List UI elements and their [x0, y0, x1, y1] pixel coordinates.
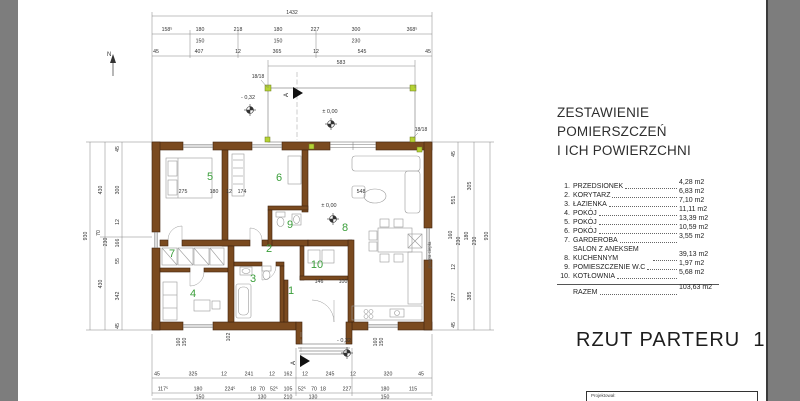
dim-label: 52⁵ [298, 387, 306, 393]
dim-label: 12 [451, 264, 457, 270]
row-label: POKÓJ [573, 218, 597, 227]
dim-label: 365 [273, 49, 282, 55]
dim-label: 12 [235, 49, 241, 55]
row-area: 4,28 m2 [679, 178, 719, 187]
dotted-leader [599, 224, 677, 225]
dim-label: 150 [381, 395, 390, 401]
dim-label: 52⁵ [270, 387, 278, 393]
level-label-terrace: ± 0,00 [322, 109, 337, 115]
row-area: 10,59 m2 [679, 223, 719, 232]
room-number-8: 8 [342, 222, 348, 234]
dim-label: 241 [245, 372, 254, 378]
row-label: POKÓJ [573, 227, 597, 236]
room-number-5: 5 [207, 171, 213, 183]
dim-label: 230 [352, 39, 361, 45]
column-size-label: 18/18 [415, 127, 428, 133]
row-number: 5. [557, 218, 570, 227]
dimension-lines [86, 12, 494, 399]
dim-label: 277 [451, 293, 457, 302]
dim-label: 105 [284, 387, 293, 393]
dim-label: 551 [451, 196, 457, 205]
pasteboard-right [766, 0, 800, 401]
room-number-9: 9 [287, 219, 293, 231]
dim-label: 70 [311, 387, 317, 393]
dim-label: 45 [153, 49, 159, 55]
schedule-rows: 1.PRZEDSIONEK4,28 m2 2.KORYTARZ6,83 m2 3… [557, 182, 719, 281]
dim-label: 70 [259, 387, 265, 393]
room-number-1: 1 [288, 285, 294, 297]
row-number: 6. [557, 227, 570, 236]
dim-label: 230 [456, 237, 462, 246]
dim-label: 180 [274, 27, 283, 33]
dim-label: 342 [115, 292, 121, 301]
room-schedule: ZESTAWIENIE POMIERSZCZEŃ I ICH POWIERZCH… [557, 104, 719, 297]
dim-label: 45 [154, 372, 160, 378]
dim-label: 230 [103, 238, 109, 247]
dim-label: 130 [258, 395, 267, 401]
dim-label: 45 [418, 372, 424, 378]
room-number-10: 10 [311, 259, 323, 271]
schedule-title-line2: I ICH POWIERZCHNI [557, 142, 719, 161]
dim-label: 45 [115, 323, 121, 329]
dim-label: 180 [196, 27, 205, 33]
dim-label: 430 [98, 280, 104, 289]
dim-label: 115 [409, 387, 417, 393]
section-label: A [291, 361, 297, 365]
row-number: 7. [557, 236, 570, 245]
row-number: 10. [557, 272, 570, 281]
dim-label: 218 [234, 27, 243, 33]
dim-label: 407 [195, 49, 204, 55]
dim-label: 180 [381, 387, 390, 393]
dotted-leader [599, 215, 677, 216]
dim-label: 12 [302, 372, 308, 378]
dim-label: 12 [269, 372, 275, 378]
dim-label: 180 [464, 232, 470, 241]
row-area: 39,13 m2 [679, 250, 719, 259]
dim-label: 305 [467, 182, 473, 191]
screenshot-canvas: 1432 158⁵ 180 218 180 227 300 368⁵ 150 1… [0, 0, 800, 401]
dim-label: 150 [379, 338, 385, 347]
row-label: ŁAZIENKA [573, 200, 607, 209]
dim-label: 300 [115, 186, 121, 195]
total-label: RAZEM [573, 288, 598, 297]
dim-label: 930 [484, 232, 490, 241]
dotted-leader [609, 206, 677, 207]
dim-label: 210 [284, 395, 293, 401]
row-area: 1,97 m2 [679, 259, 719, 268]
room-number-6: 6 [276, 172, 282, 184]
dim-label: 160 [448, 231, 454, 240]
column-size-label: 18/18 [252, 74, 265, 80]
dim-label: 102 [226, 333, 232, 342]
room-number-3: 3 [250, 273, 256, 285]
dim-label: 12 [313, 49, 319, 55]
schedule-row: 10.KOTŁOWNIA5,68 m2 [557, 272, 719, 281]
row-area: 7,10 m2 [679, 196, 719, 205]
dim-label: 45 [425, 49, 431, 55]
dim-label: 245 [326, 372, 335, 378]
dim-label: 146 [315, 279, 324, 285]
north-label: N [107, 52, 111, 58]
dim-label: 930 [83, 232, 89, 241]
dim-label: 227 [343, 387, 352, 393]
dim-label: 320 [384, 372, 393, 378]
dotted-leader [599, 233, 677, 234]
terrace-outline [268, 88, 415, 142]
row-number: 9. [557, 263, 570, 272]
schedule-row: 7.GARDEROBA3,55 m2 [557, 236, 719, 245]
dim-label: 12 [226, 189, 232, 195]
dim-label: 150 [182, 338, 188, 347]
dim-label: 385 [467, 292, 473, 301]
title-block: Projektował: [586, 391, 758, 401]
dotted-leader [600, 294, 678, 295]
dim-label: 545 [358, 49, 367, 55]
dim-label: 45 [451, 151, 457, 157]
dim-label: 162 [284, 372, 293, 378]
dim-label: 180 [210, 189, 219, 195]
room-number-4: 4 [190, 288, 196, 300]
dotted-leader [653, 260, 677, 261]
dim-label: 150 [274, 39, 283, 45]
dim-label: 166 [115, 239, 121, 248]
row-number: 8. [557, 254, 570, 263]
dim-label: 300 [352, 27, 361, 33]
row-label: POMIESZCZENIE W.C [573, 263, 645, 272]
level-label-salon: ± 0,00 [321, 203, 336, 209]
dim-label: 325 [189, 372, 198, 378]
row-number: 3. [557, 200, 570, 209]
title-block-label: Projektował: [587, 392, 757, 398]
dim-label: 224⁵ [225, 387, 236, 393]
dim-label: 180 [194, 387, 203, 393]
dotted-leader [612, 197, 677, 198]
dim-label: 150 [196, 39, 205, 45]
room-number-7: 7 [169, 248, 175, 260]
row-label: GARDEROBA [573, 236, 618, 245]
dim-label: 583 [337, 60, 346, 66]
dim-label: 548 [357, 189, 366, 195]
dim-label: 230 [472, 237, 478, 246]
dotted-leader [617, 278, 677, 279]
schedule-title: ZESTAWIENIE POMIERSZCZEŃ I ICH POWIERZCH… [557, 104, 719, 161]
level-label-outside-bottom: - 0,32 [337, 338, 351, 344]
dim-label: 150 [196, 395, 205, 401]
dim-label: 117⁵ [158, 387, 168, 393]
dim-label: 12 [350, 372, 356, 378]
row-area: 11,11 m2 [679, 205, 719, 214]
row-number: 4. [557, 209, 570, 218]
row-area: 6,83 m2 [679, 187, 719, 196]
dim-label: 45 [451, 322, 457, 328]
dim-label: 100 [339, 279, 348, 285]
total-area: 103,63 m2 [679, 283, 719, 292]
dim-label: 430 [98, 186, 104, 195]
dim-label: 275 [179, 189, 188, 195]
row-number: 2. [557, 191, 570, 200]
dim-label: 1432 [286, 10, 298, 16]
row-area: 13,39 m2 [679, 214, 719, 223]
dim-label: 18 [250, 387, 256, 393]
dim-label: 18 [320, 387, 326, 393]
dim-label: 70 [96, 230, 102, 236]
dim-label: 12 [221, 372, 227, 378]
section-label: A [284, 93, 290, 97]
dim-label: 174 [238, 189, 247, 195]
row-label: SALON Z ANEKSEM KUCHENNYM [573, 245, 651, 263]
dim-label: 45 [115, 146, 121, 152]
dotted-leader [620, 242, 677, 243]
dotted-leader [647, 269, 677, 270]
dotted-leader [625, 188, 677, 189]
row-label: KOTŁOWNIA [573, 272, 615, 281]
row-label: PRZEDSIONEK [573, 182, 623, 191]
dim-label: 130 [309, 395, 318, 401]
dim-label: 227 [311, 27, 320, 33]
room-number-2: 2 [266, 243, 272, 255]
row-area: 3,55 m2 [679, 232, 719, 241]
level-label-outside-top: - 0,32 [241, 95, 255, 101]
dim-label: 55 [115, 258, 121, 264]
schedule-title-line1: ZESTAWIENIE POMIERSZCZEŃ [557, 104, 719, 142]
row-number: 1. [557, 182, 570, 191]
north-arrow: N [107, 52, 116, 76]
dim-label: 368⁵ [407, 27, 418, 33]
schedule-total-row: RAZEM 103,63 m2 [557, 284, 719, 297]
dim-label: 158⁵ [162, 27, 173, 33]
vertical-note: pompa ciepła [427, 241, 432, 268]
dim-label: 12 [115, 219, 121, 225]
row-label: KORYTARZ [573, 191, 610, 200]
row-area: 5,68 m2 [679, 268, 719, 277]
row-label: POKÓJ [573, 209, 597, 218]
